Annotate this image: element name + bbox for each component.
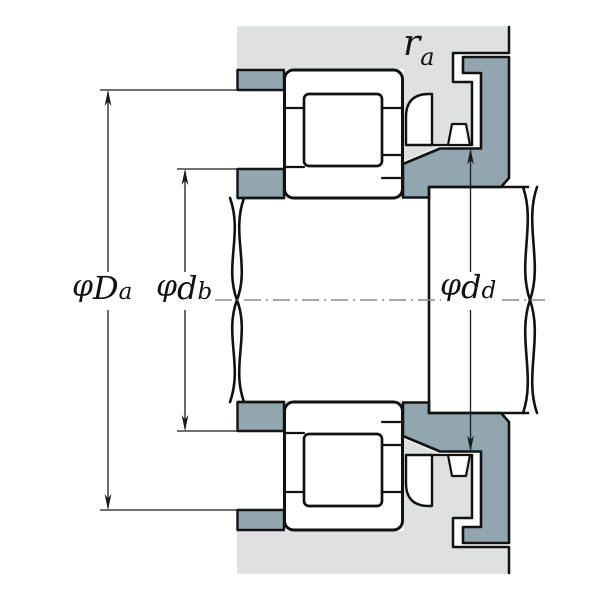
label-main: d: [461, 271, 481, 303]
roller: [304, 94, 382, 166]
diagram-canvas: φDa φdb φdd ra: [0, 0, 600, 600]
label-main: D: [93, 272, 119, 304]
phi-symbol: φ: [440, 271, 461, 301]
fillet-relief-collar: [406, 94, 432, 145]
label-phi-db: φdb: [156, 272, 212, 304]
label-subscript: a: [119, 281, 133, 304]
label-subscript: a: [420, 43, 434, 71]
phi-symbol: φ: [72, 272, 93, 302]
label-phi-Da: φDa: [72, 272, 132, 304]
shaft-abutment-spacer: [238, 169, 285, 198]
label-ra: ra: [403, 26, 435, 62]
housing-shoulder-spacer: [238, 70, 285, 90]
label-main: r: [403, 23, 420, 64]
label-phi-dd: φdd: [440, 271, 496, 303]
label-subscript: b: [198, 281, 213, 304]
label-main: d: [177, 272, 197, 304]
label-subscript: d: [482, 280, 497, 303]
rib-lip: [448, 124, 470, 145]
phi-symbol: φ: [156, 272, 177, 302]
